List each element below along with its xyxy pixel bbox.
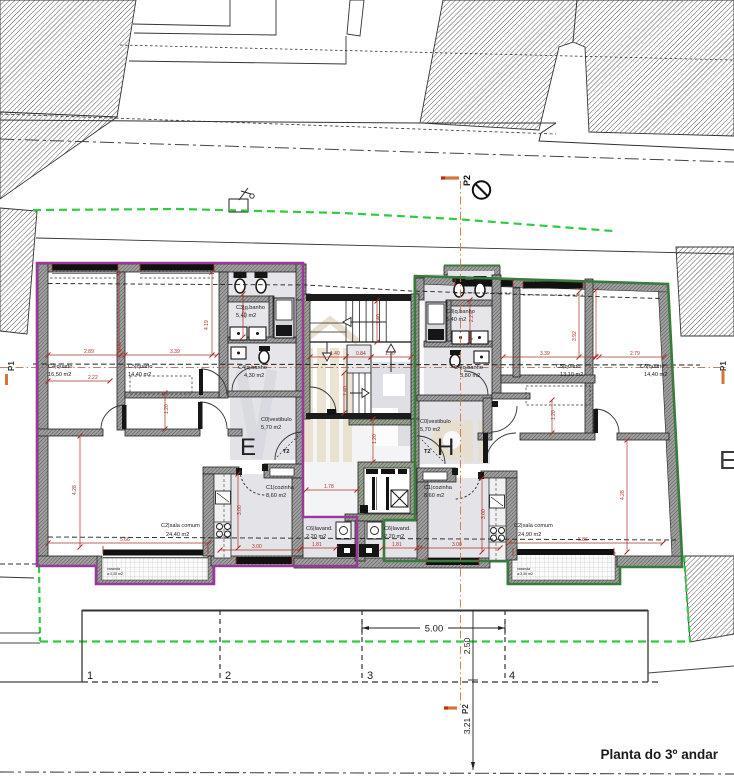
svg-text:3.21: 3.21 [462, 717, 472, 734]
svg-text:varanda: varanda [517, 567, 530, 571]
svg-text:3.00: 3.00 [452, 542, 462, 548]
svg-text:C1|cozinha: C1|cozinha [266, 485, 295, 491]
svg-text:4: 4 [509, 670, 515, 682]
svg-text:2.79: 2.79 [630, 351, 640, 357]
svg-text:P2: P2 [462, 175, 472, 186]
svg-text:Planta do 3º andar: Planta do 3º andar [601, 747, 719, 762]
svg-text:4.28: 4.28 [72, 485, 78, 495]
svg-text:8,60 m2: 8,60 m2 [266, 493, 286, 499]
svg-text:C0|vestibulo: C0|vestibulo [420, 419, 451, 425]
svg-text:3.92: 3.92 [572, 331, 578, 341]
svg-text:3: 3 [367, 670, 373, 682]
svg-text:C3|q.banho: C3|q.banho [446, 309, 475, 315]
svg-text:C4|q.banho: C4|q.banho [454, 365, 483, 371]
svg-text:C1|cozinha: C1|cozinha [424, 485, 453, 491]
svg-text:1.81: 1.81 [312, 542, 322, 548]
svg-text:3.39: 3.39 [540, 351, 550, 357]
svg-text:C5|quarto: C5|quarto [128, 364, 152, 370]
svg-text:P1: P1 [719, 361, 728, 371]
svg-text:2.22: 2.22 [88, 375, 98, 381]
svg-text:3,80 m2: 3,80 m2 [460, 373, 480, 379]
svg-text:24,90 m2: 24,90 m2 [518, 532, 541, 538]
svg-text:1.40: 1.40 [376, 314, 382, 324]
svg-text:1: 1 [87, 670, 93, 682]
svg-text:5,40 m2: 5,40 m2 [236, 313, 256, 319]
svg-text:5.86: 5.86 [578, 537, 588, 543]
svg-text:3.00: 3.00 [481, 509, 487, 519]
svg-text:13,10 m2: 13,10 m2 [560, 372, 583, 378]
svg-text:16,50 m2: 16,50 m2 [48, 372, 71, 378]
svg-text:1.20: 1.20 [551, 410, 557, 420]
svg-text:14,40 m2: 14,40 m2 [128, 372, 151, 378]
svg-text:1.81: 1.81 [392, 542, 402, 548]
svg-text:0.84: 0.84 [356, 351, 366, 357]
svg-text:3.39: 3.39 [170, 349, 180, 355]
svg-text:5,40 m2: 5,40 m2 [446, 317, 466, 323]
svg-text:4,30 m2: 4,30 m2 [244, 373, 264, 379]
svg-text:3.00: 3.00 [237, 505, 243, 515]
svg-text:C4|q.banho: C4|q.banho [238, 365, 267, 371]
svg-text:T2: T2 [283, 449, 289, 455]
svg-text:C0|vestibulo: C0|vestibulo [261, 417, 292, 423]
svg-text:P2: P2 [461, 704, 470, 714]
svg-text:5.66: 5.66 [120, 537, 130, 543]
svg-text:1.20: 1.20 [372, 434, 378, 444]
svg-text:El: El [719, 445, 734, 475]
svg-text:C2|sala comum: C2|sala comum [514, 523, 553, 529]
svg-text:varanda: varanda [107, 567, 120, 571]
svg-text:C3|q.banho: C3|q.banho [236, 305, 265, 311]
svg-text:C2|sala comum: C2|sala comum [161, 523, 200, 529]
svg-text:5,70 m2: 5,70 m2 [261, 425, 281, 431]
svg-text:2.50: 2.50 [462, 637, 472, 654]
svg-text:1.20: 1.20 [164, 404, 170, 414]
svg-text:5.00: 5.00 [425, 624, 444, 635]
svg-text:3.00: 3.00 [252, 544, 262, 550]
svg-text:2.89: 2.89 [84, 349, 94, 355]
svg-text:1.40: 1.40 [343, 386, 349, 396]
svg-text:E: E [240, 434, 256, 461]
svg-text:1.40: 1.40 [330, 351, 340, 357]
svg-text:C6|lavand.: C6|lavand. [306, 526, 333, 532]
svg-text:5,70 m2: 5,70 m2 [420, 427, 440, 433]
svg-text:4.19: 4.19 [204, 320, 210, 330]
svg-text:C6|lavand.: C6|lavand. [384, 526, 411, 532]
svg-text:2: 2 [225, 670, 231, 682]
svg-text:C6|quarto: C6|quarto [640, 364, 664, 370]
svg-text:2,20 m2: 2,20 m2 [384, 534, 404, 540]
svg-text:14,40 m2: 14,40 m2 [644, 372, 667, 378]
svg-text:a:3,30 m2: a:3,30 m2 [517, 572, 533, 576]
svg-text:C5|quarto: C5|quarto [556, 364, 580, 370]
svg-text:0.66: 0.66 [117, 342, 123, 352]
svg-text:8,60 m2: 8,60 m2 [424, 493, 444, 499]
svg-text:1.10: 1.10 [385, 351, 395, 357]
svg-text:24,40 m2: 24,40 m2 [166, 532, 189, 538]
svg-text:1.78: 1.78 [324, 484, 334, 490]
svg-text:C4|quarto: C4|quarto [48, 364, 72, 370]
svg-text:a:3,30 m2: a:3,30 m2 [107, 572, 123, 576]
svg-text:T2: T2 [424, 449, 430, 455]
svg-text:P1: P1 [7, 361, 16, 371]
svg-text:4.28: 4.28 [620, 490, 626, 500]
svg-text:H: H [437, 434, 454, 461]
svg-text:2,20 m2: 2,20 m2 [306, 534, 326, 540]
